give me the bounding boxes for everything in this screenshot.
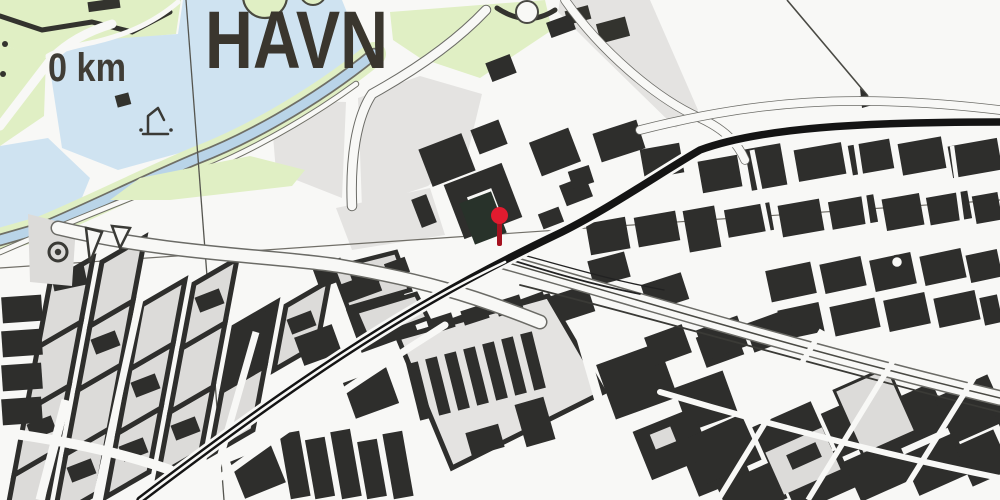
svg-text:HAVN: HAVN — [205, 0, 388, 86]
svg-text:0 km: 0 km — [48, 46, 126, 90]
